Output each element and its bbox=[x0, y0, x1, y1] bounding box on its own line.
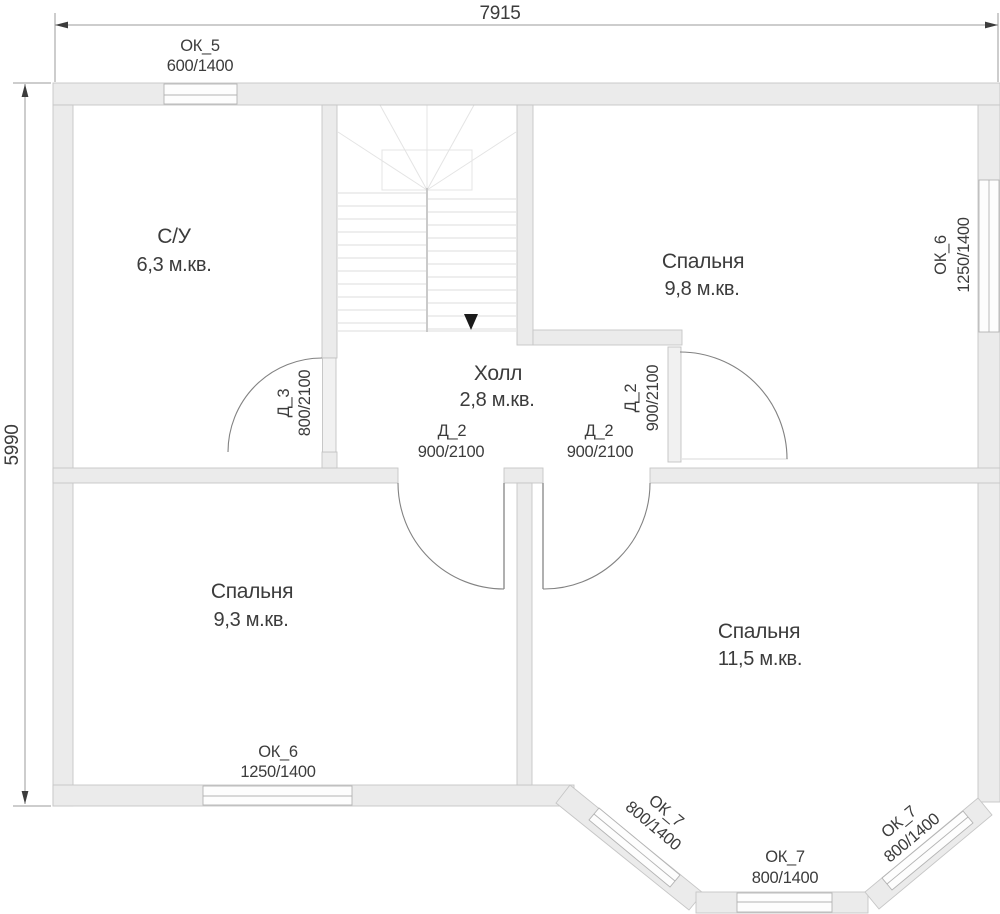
room-area-bedroom-11-5: 11,5 м.кв. bbox=[718, 648, 802, 670]
wall-left bbox=[53, 105, 73, 806]
wall-stairwell-right bbox=[517, 105, 533, 345]
wall-middle-right bbox=[650, 468, 1000, 483]
floor-plan-canvas: 7915 5990 С/У 6,3 м.кв. Спальня 9,8 м.кв… bbox=[0, 0, 1000, 914]
dim-height-label: 5990 bbox=[2, 424, 23, 465]
door-label-d3-id: Д_3 bbox=[275, 389, 293, 418]
wall-hall-top bbox=[533, 330, 682, 345]
door-label-d2-right-id: Д_2 bbox=[585, 422, 614, 440]
wall-middle-center bbox=[504, 468, 543, 483]
window-labels: ОК_5 600/1400 ОК_6 1250/1400 ОК_6 1250/1… bbox=[167, 37, 973, 887]
window-label-ok5-size: 600/1400 bbox=[167, 57, 234, 75]
dim-width-label: 7915 bbox=[479, 3, 520, 24]
window-ok5 bbox=[164, 84, 237, 104]
room-name-hall: Холл bbox=[474, 362, 522, 385]
wall-middle-left bbox=[53, 468, 398, 483]
dim-arrow-down-icon bbox=[22, 791, 29, 804]
door-label-d2-left-id: Д_2 bbox=[438, 422, 467, 440]
window-ok7-bay-bottom bbox=[737, 893, 832, 912]
room-name-bedroom-9-3: Спальня bbox=[211, 580, 293, 603]
window-ok6-bottom bbox=[203, 786, 352, 805]
stairs-down-arrow-icon bbox=[464, 314, 478, 330]
dim-arrow-up-icon bbox=[22, 84, 29, 97]
dimension-left: 5990 bbox=[2, 83, 51, 806]
staircase bbox=[338, 105, 516, 332]
windows bbox=[164, 84, 999, 912]
door-d2-bedroom-9-8 bbox=[668, 347, 788, 462]
window-label-ok7-bottom-size: 800/1400 bbox=[752, 869, 819, 887]
wall-bedrooms-divider bbox=[517, 483, 532, 785]
room-area-bedroom-9-3: 9,3 м.кв. bbox=[214, 609, 289, 631]
window-ok6-right bbox=[979, 180, 999, 332]
room-name-su: С/У bbox=[157, 225, 191, 248]
door-label-d2-right-size: 900/2100 bbox=[567, 443, 634, 461]
door-d2-bedroom-9-3 bbox=[398, 483, 504, 589]
room-area-bedroom-9-8: 9,8 м.кв. bbox=[665, 278, 740, 300]
dim-arrow-left-icon bbox=[55, 22, 68, 29]
door-label-d2-bedroom98-size: 900/2100 bbox=[644, 365, 662, 432]
walls bbox=[53, 83, 1000, 913]
window-label-ok5-id: ОК_5 bbox=[180, 37, 220, 55]
window-label-ok6-right-size: 1250/1400 bbox=[955, 217, 973, 292]
wall-stairwell-left-upper bbox=[322, 105, 337, 358]
door-label-d2-left-size: 900/2100 bbox=[418, 443, 485, 461]
room-name-bedroom-9-8: Спальня bbox=[662, 250, 744, 273]
room-area-hall: 2,8 м.кв. bbox=[460, 389, 535, 411]
window-label-ok6-bottom-id: ОК_6 bbox=[258, 743, 298, 761]
window-label-ok6-right-id: ОК_6 bbox=[932, 235, 950, 275]
dim-arrow-right-icon bbox=[985, 22, 998, 29]
room-area-su: 6,3 м.кв. bbox=[137, 254, 212, 276]
door-d2-bedroom-11-5 bbox=[543, 483, 650, 589]
door-label-d2-bedroom98-id: Д_2 bbox=[622, 384, 640, 413]
room-name-bedroom-11-5: Спальня bbox=[718, 620, 800, 643]
floor-plan-svg: 7915 5990 С/У 6,3 м.кв. Спальня 9,8 м.кв… bbox=[0, 0, 1000, 914]
wall-stairwell-left-lower bbox=[322, 452, 337, 468]
window-label-ok7-bottom-id: ОК_7 bbox=[765, 848, 805, 866]
window-label-ok6-bottom-size: 1250/1400 bbox=[240, 763, 315, 781]
door-label-d3-size: 800/2100 bbox=[296, 370, 314, 437]
